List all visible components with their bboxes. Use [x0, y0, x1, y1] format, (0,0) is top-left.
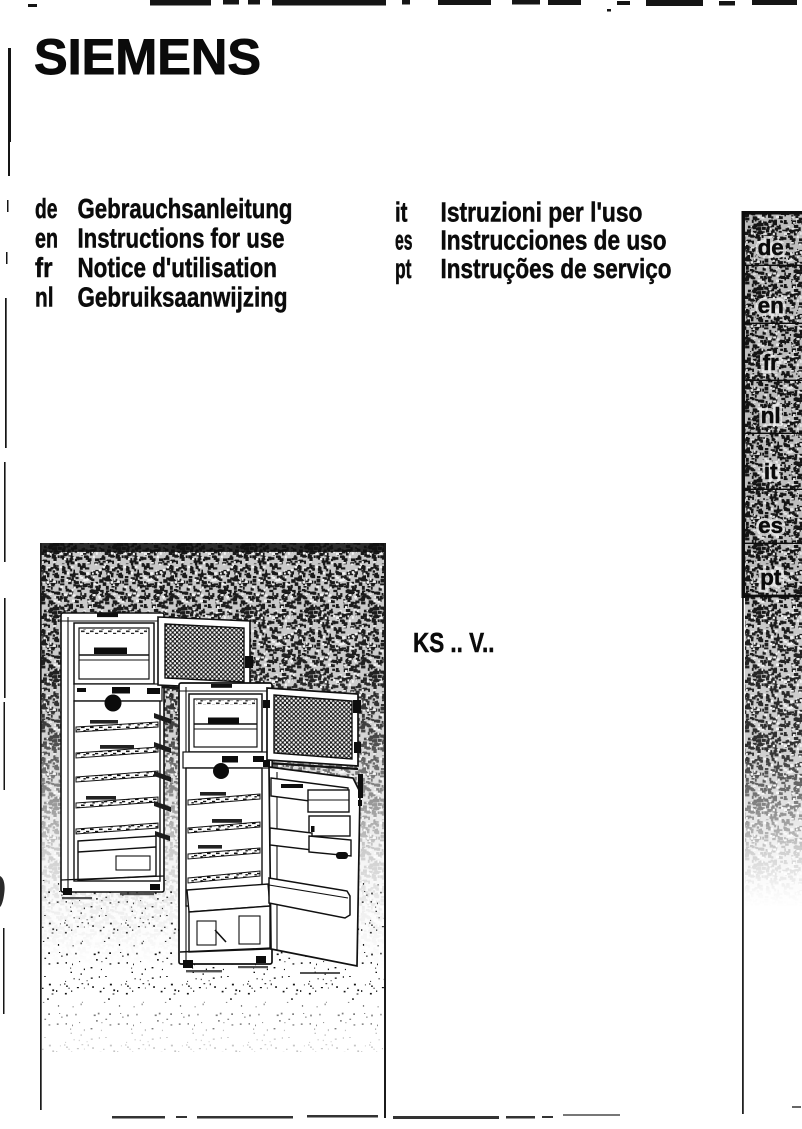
svg-text:de: de: [35, 193, 58, 224]
svg-text:Notice d'utilisation: Notice d'utilisation: [78, 252, 278, 283]
svg-text:Instruções de serviço: Instruções de serviço: [441, 253, 672, 284]
svg-text:pt: pt: [395, 253, 412, 284]
svg-text:nl: nl: [761, 403, 781, 428]
svg-text:en: en: [35, 223, 58, 254]
svg-text:Instructions for use: Instructions for use: [78, 223, 285, 254]
svg-text:KS .. V..: KS .. V..: [413, 627, 495, 658]
svg-text:de: de: [758, 235, 784, 260]
svg-text:Gebruiksaanwijzing: Gebruiksaanwijzing: [78, 282, 288, 313]
svg-text:Gebrauchsanleitung: Gebrauchsanleitung: [78, 193, 293, 224]
svg-text:es: es: [395, 225, 413, 256]
svg-text:es: es: [758, 513, 783, 538]
svg-text:pt: pt: [760, 565, 782, 590]
svg-text:it: it: [395, 197, 408, 228]
svg-text:Istruzioni per l'uso: Istruzioni per l'uso: [441, 197, 643, 228]
svg-text:it: it: [764, 459, 778, 484]
svg-text:fr: fr: [763, 350, 779, 375]
svg-text:nl: nl: [35, 282, 54, 313]
svg-text:fr: fr: [35, 252, 53, 283]
svg-text:en: en: [758, 293, 784, 318]
svg-text:Instrucciones de uso: Instrucciones de uso: [441, 225, 667, 256]
svg-text:SIEMENS: SIEMENS: [34, 29, 261, 85]
